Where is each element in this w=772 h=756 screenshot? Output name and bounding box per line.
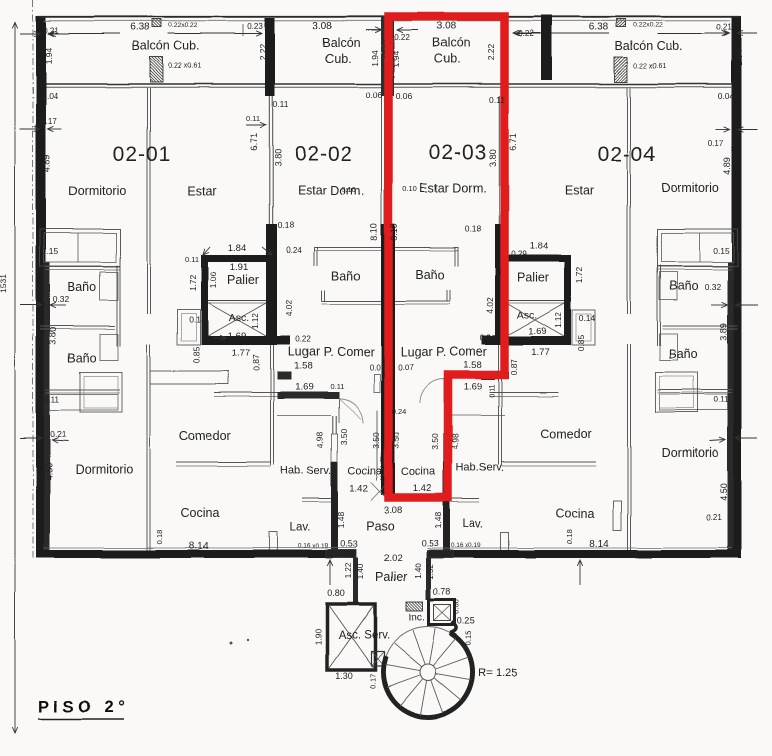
svg-text:Baño: Baño <box>67 280 96 294</box>
svg-text:Cocina: Cocina <box>181 506 220 520</box>
svg-text:1.69: 1.69 <box>295 382 314 393</box>
svg-text:3.80: 3.80 <box>48 327 58 345</box>
svg-text:1.94: 1.94 <box>44 47 54 64</box>
svg-text:3.08: 3.08 <box>436 21 456 32</box>
svg-text:3.50: 3.50 <box>371 431 381 448</box>
svg-text:1.94: 1.94 <box>734 49 744 66</box>
svg-text:1.12: 1.12 <box>251 313 260 329</box>
svg-text:1.42: 1.42 <box>350 483 369 494</box>
svg-text:0.15: 0.15 <box>42 246 59 256</box>
svg-text:Estar: Estar <box>565 183 594 197</box>
svg-text:0.80: 0.80 <box>327 588 345 598</box>
svg-text:0.23: 0.23 <box>247 22 263 31</box>
svg-text:3.50: 3.50 <box>430 433 440 450</box>
svg-text:02-02: 02-02 <box>295 143 354 166</box>
svg-text:0.06: 0.06 <box>366 90 383 100</box>
svg-text:PISO 2°: PISO 2° <box>38 698 129 716</box>
svg-text:1.69: 1.69 <box>464 382 483 393</box>
svg-text:0.22: 0.22 <box>394 33 410 42</box>
svg-text:Balcón: Balcón <box>322 36 360 50</box>
svg-text:Balcón: Balcón <box>432 36 470 50</box>
svg-text:0.11: 0.11 <box>489 384 496 397</box>
svg-text:1.77: 1.77 <box>232 348 251 359</box>
svg-text:0.11: 0.11 <box>330 382 344 391</box>
svg-text:02-01: 02-01 <box>113 143 172 166</box>
svg-text:Baño: Baño <box>331 269 360 283</box>
svg-text:Lugar P. Comer: Lugar P. Comer <box>288 345 375 359</box>
svg-text:1.48: 1.48 <box>433 511 443 528</box>
svg-text:4.50: 4.50 <box>719 483 729 501</box>
svg-text:Comedor: Comedor <box>179 429 230 443</box>
svg-text:1.72: 1.72 <box>574 266 584 283</box>
svg-text:Lav.: Lav. <box>463 518 484 530</box>
svg-text:0.22 x0.61: 0.22 x0.61 <box>169 63 202 70</box>
svg-text:4.89: 4.89 <box>42 154 52 172</box>
svg-text:0.16 x0.19: 0.16 x0.19 <box>298 543 329 550</box>
svg-text:Estar: Estar <box>187 184 216 198</box>
svg-text:0.11: 0.11 <box>185 255 199 264</box>
svg-text:3.08: 3.08 <box>312 21 332 32</box>
svg-text:0.16 x0.19: 0.16 x0.19 <box>451 542 482 549</box>
svg-text:4.98: 4.98 <box>315 431 325 448</box>
svg-text:1.69: 1.69 <box>528 326 547 337</box>
svg-text:3.50: 3.50 <box>391 431 401 448</box>
svg-text:0.24: 0.24 <box>392 407 407 416</box>
svg-text:Cocina: Cocina <box>348 465 383 477</box>
svg-text:Cocina: Cocina <box>401 466 436 478</box>
svg-text:0.85: 0.85 <box>576 334 586 351</box>
svg-text:4.89: 4.89 <box>722 157 732 175</box>
svg-text:02-04: 02-04 <box>598 143 657 166</box>
svg-text:0.17: 0.17 <box>368 674 377 689</box>
svg-text:0.25: 0.25 <box>457 616 475 626</box>
svg-text:0.11: 0.11 <box>246 114 260 123</box>
svg-text:0.14: 0.14 <box>189 315 206 325</box>
svg-text:0.10: 0.10 <box>342 185 357 194</box>
svg-text:0.85: 0.85 <box>191 346 201 363</box>
svg-text:0.11: 0.11 <box>273 99 289 109</box>
svg-text:4.02: 4.02 <box>485 297 495 314</box>
svg-text:Palier: Palier <box>517 271 549 285</box>
svg-text:6.71: 6.71 <box>508 133 518 151</box>
svg-text:0.18: 0.18 <box>465 223 482 233</box>
svg-text:0.87: 0.87 <box>251 354 261 371</box>
svg-text:1.69: 1.69 <box>228 331 247 342</box>
svg-text:0.21: 0.21 <box>706 513 722 522</box>
svg-text:0.87: 0.87 <box>509 358 519 375</box>
svg-text:Baño: Baño <box>67 351 96 365</box>
svg-text:1.77: 1.77 <box>531 347 550 358</box>
svg-text:0.17: 0.17 <box>41 117 57 126</box>
svg-text:Palier: Palier <box>227 273 259 287</box>
svg-text:1.84: 1.84 <box>228 243 247 254</box>
svg-text:0.24: 0.24 <box>286 246 302 255</box>
svg-text:Baño: Baño <box>415 268 444 282</box>
svg-text:Estar Dorm.: Estar Dorm. <box>420 181 487 195</box>
svg-text:4.98: 4.98 <box>450 433 460 450</box>
svg-text:0.21: 0.21 <box>43 26 59 35</box>
svg-text:0.60: 0.60 <box>452 600 461 615</box>
svg-text:1.52: 1.52 <box>426 564 435 580</box>
svg-text:Balcón Cub.: Balcón Cub. <box>615 39 683 53</box>
svg-text:1.42: 1.42 <box>413 483 432 494</box>
svg-text:0.22 x0.61: 0.22 x0.61 <box>634 63 667 70</box>
svg-text:Lav.: Lav. <box>290 522 311 534</box>
svg-text:0.04: 0.04 <box>42 91 59 101</box>
svg-text:R= 1.25: R= 1.25 <box>479 667 518 679</box>
svg-text:0.32: 0.32 <box>705 282 722 292</box>
svg-text:1.48: 1.48 <box>336 511 346 528</box>
svg-text:0.10: 0.10 <box>403 184 418 193</box>
svg-text:0.21: 0.21 <box>50 430 66 439</box>
svg-text:1.72: 1.72 <box>188 274 198 291</box>
svg-text:Baño: Baño <box>669 279 698 293</box>
svg-text:Baño: Baño <box>668 347 697 361</box>
svg-text:1.58: 1.58 <box>294 361 313 372</box>
svg-text:Cub.: Cub. <box>434 52 460 66</box>
svg-text:02-03: 02-03 <box>429 141 488 164</box>
svg-text:1.84: 1.84 <box>530 241 549 252</box>
svg-text:0.22x0.22: 0.22x0.22 <box>633 22 663 29</box>
svg-text:4.50: 4.50 <box>44 462 54 480</box>
svg-text:8.14: 8.14 <box>189 541 209 552</box>
svg-text:1.06: 1.06 <box>208 271 218 288</box>
svg-text:0.11: 0.11 <box>45 395 61 404</box>
svg-text:1.94: 1.94 <box>370 49 380 66</box>
svg-text:Balcón Cub.: Balcón Cub. <box>132 39 200 53</box>
svg-text:Hab. Serv.: Hab. Serv. <box>280 465 331 477</box>
svg-text:0.15: 0.15 <box>464 631 473 646</box>
svg-text:0.53: 0.53 <box>340 539 358 549</box>
svg-text:0.04: 0.04 <box>718 91 735 101</box>
svg-text:0.21: 0.21 <box>716 23 732 32</box>
svg-text:0.06: 0.06 <box>396 91 413 101</box>
svg-text:3.80: 3.80 <box>488 149 498 167</box>
svg-text:0.07: 0.07 <box>398 363 414 372</box>
svg-text:Dormitorio: Dormitorio <box>661 181 719 195</box>
svg-text:Lugar P. Comer: Lugar P. Comer <box>401 345 488 359</box>
svg-text:0.78: 0.78 <box>433 587 451 597</box>
svg-text:0.07: 0.07 <box>369 363 385 372</box>
svg-text:Comedor: Comedor <box>540 427 591 441</box>
svg-text:0.15: 0.15 <box>713 246 730 256</box>
svg-text:1.40: 1.40 <box>356 564 365 580</box>
svg-text:0.22x0.22: 0.22x0.22 <box>168 22 198 29</box>
svg-text:Asc.: Asc. <box>517 309 537 321</box>
svg-text:3.50: 3.50 <box>339 428 349 445</box>
svg-text:1.30: 1.30 <box>335 671 353 681</box>
svg-text:8.10: 8.10 <box>389 223 399 241</box>
svg-text:1.94: 1.94 <box>391 50 401 67</box>
svg-text:3.80: 3.80 <box>273 149 283 167</box>
svg-text:Palier: Palier <box>375 570 407 584</box>
svg-text:2.02: 2.02 <box>384 553 403 564</box>
svg-text:0.11: 0.11 <box>489 95 505 105</box>
svg-text:1.90: 1.90 <box>313 628 323 645</box>
svg-text:6.38: 6.38 <box>130 22 150 33</box>
svg-text:Cocina: Cocina <box>556 507 595 521</box>
svg-text:Paso: Paso <box>366 519 395 533</box>
svg-text:1.12: 1.12 <box>554 312 563 328</box>
svg-text:0.14: 0.14 <box>579 313 596 323</box>
svg-text:0.17: 0.17 <box>708 139 724 148</box>
svg-text:0.29: 0.29 <box>511 250 527 259</box>
svg-text:2.22: 2.22 <box>258 43 268 60</box>
svg-text:0.53: 0.53 <box>421 538 439 548</box>
svg-text:2.22: 2.22 <box>486 43 496 60</box>
svg-text:1.58: 1.58 <box>464 360 483 371</box>
svg-text:Hab.Serv.: Hab.Serv. <box>456 462 504 474</box>
svg-text:6.71: 6.71 <box>249 133 259 151</box>
svg-text:0.22: 0.22 <box>295 335 311 344</box>
svg-text:0.22: 0.22 <box>518 29 534 38</box>
svg-text:1.91: 1.91 <box>230 262 249 273</box>
svg-text:6.38: 6.38 <box>589 22 609 33</box>
svg-text:3.08: 3.08 <box>384 505 403 516</box>
svg-text:Dormitorio: Dormitorio <box>75 463 133 477</box>
svg-text:1.40: 1.40 <box>414 563 423 579</box>
svg-text:Dormitorio: Dormitorio <box>661 446 719 460</box>
svg-text:Asc. Serv.: Asc. Serv. <box>338 630 390 642</box>
svg-text:Cub.: Cub. <box>325 52 351 66</box>
svg-text:0.11: 0.11 <box>714 395 730 404</box>
svg-text:Dormitorio: Dormitorio <box>68 184 126 198</box>
svg-text:8.14: 8.14 <box>589 539 609 550</box>
svg-text:0.18: 0.18 <box>278 220 295 230</box>
svg-text:1.22: 1.22 <box>344 563 353 579</box>
svg-text:8.10: 8.10 <box>369 223 379 241</box>
svg-text:1531: 1531 <box>0 274 8 293</box>
svg-text:4.02: 4.02 <box>284 299 294 316</box>
svg-text:0.18: 0.18 <box>565 530 574 545</box>
svg-text:0.32: 0.32 <box>53 294 70 304</box>
svg-text:3.89: 3.89 <box>719 323 729 341</box>
svg-text:Inc.: Inc. <box>409 612 426 624</box>
svg-text:0.18: 0.18 <box>155 530 164 545</box>
svg-text:Asc.: Asc. <box>229 312 249 324</box>
svg-text:0.22: 0.22 <box>480 334 496 343</box>
